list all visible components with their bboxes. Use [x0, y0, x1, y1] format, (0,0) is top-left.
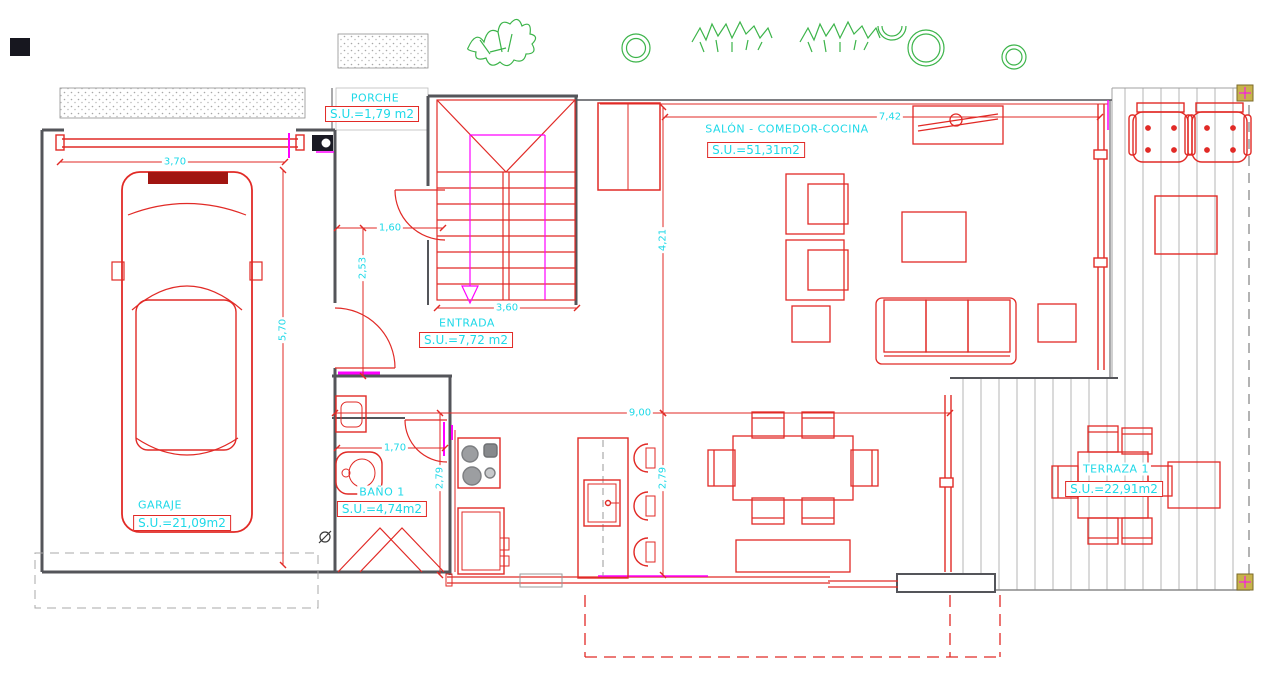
dim-garage-width: 3,70: [162, 157, 188, 168]
armchair: [786, 174, 844, 234]
dim-dining-depth: 2,79: [658, 465, 669, 491]
dim-salon-depth: 4,21: [658, 227, 669, 253]
area-label-garaje: S.U.=21,09m2: [133, 515, 231, 531]
garage-door: [56, 135, 304, 150]
dim-garage-depth: 5,70: [278, 317, 289, 343]
area-label-bano: S.U.=4,74m2: [337, 501, 427, 517]
floor-plan: PORCHE S.U.=1,79 m2 SALÓN - COMEDOR-COCI…: [0, 0, 1280, 684]
side-table: [1038, 304, 1076, 342]
dim-hall-width: 1,60: [377, 223, 403, 234]
room-label-bano: BAÑO 1: [357, 486, 406, 499]
dim-salon-width: 7,42: [877, 112, 903, 123]
kitchen: [455, 430, 509, 574]
area-label-terraza: S.U.=22,91m2: [1065, 481, 1163, 497]
car: [112, 172, 262, 532]
dim-house-width: 9,00: [627, 408, 653, 419]
armchair: [786, 240, 844, 300]
area-label-salon: S.U.=51,31m2: [707, 142, 805, 158]
kitchen-island: [578, 438, 655, 578]
bar-stools: [634, 444, 655, 566]
room-label-terraza: TERRAZA 1: [1081, 463, 1151, 476]
dining-set: [708, 412, 878, 572]
floorplan-canvas: [0, 0, 1280, 684]
coffee-table: [902, 212, 966, 262]
dim-kitchen-depth: 2,79: [435, 465, 446, 491]
area-label-porche: S.U.=1,79 m2: [325, 106, 419, 122]
drain-symbol: [319, 531, 331, 543]
sofa: [876, 298, 1016, 364]
stairs: [437, 100, 575, 300]
dim-bath-width: 1,70: [382, 443, 408, 454]
setback-dashed-outline: [585, 595, 1000, 657]
room-label-salon: SALÓN - COMEDOR-COCINA: [703, 123, 870, 136]
side-table: [792, 306, 830, 342]
area-label-entrada: S.U.=7,72 m2: [419, 332, 513, 348]
sideboard: [736, 540, 850, 572]
garden-plants: [468, 19, 1026, 69]
dim-hall-depth: 2,53: [358, 255, 369, 281]
room-label-garaje: GARAJE: [136, 499, 184, 512]
dim-stairs-width: 3,60: [494, 303, 520, 314]
living-room: [786, 106, 1076, 364]
room-label-porche: PORCHE: [349, 92, 401, 105]
room-label-entrada: ENTRADA: [437, 317, 497, 330]
